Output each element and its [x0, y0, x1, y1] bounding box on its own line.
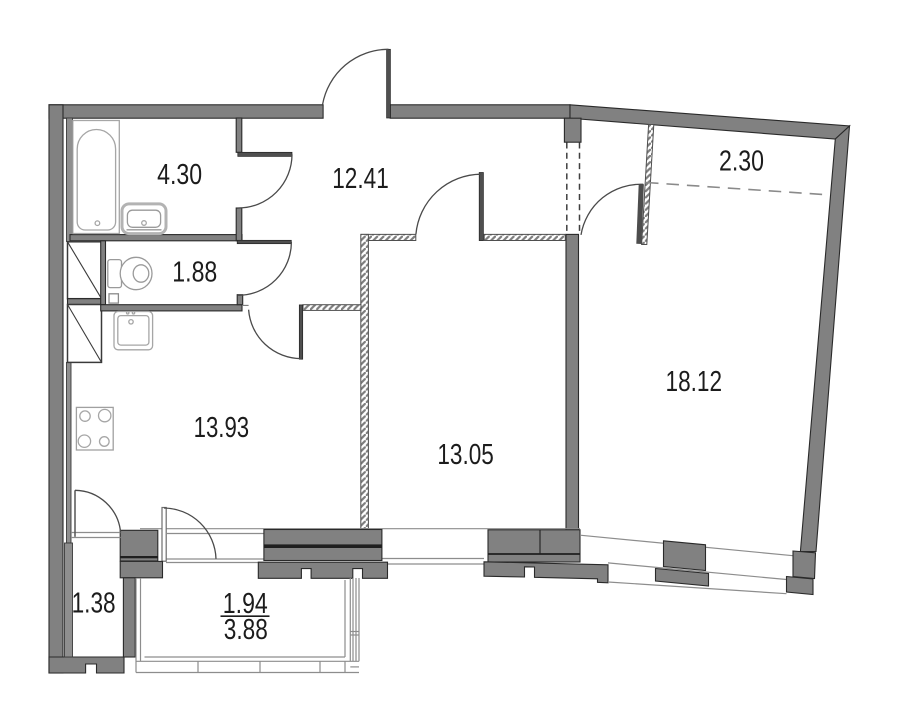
- svg-text:3.88: 3.88: [224, 614, 268, 646]
- svg-text:4.30: 4.30: [157, 159, 202, 191]
- svg-text:2.30: 2.30: [719, 145, 764, 177]
- svg-text:13.05: 13.05: [437, 439, 494, 471]
- svg-text:12.41: 12.41: [332, 163, 389, 195]
- svg-text:1.38: 1.38: [72, 587, 116, 619]
- svg-text:1.88: 1.88: [172, 257, 217, 289]
- svg-text:18.12: 18.12: [666, 366, 723, 398]
- svg-text:13.93: 13.93: [194, 412, 250, 444]
